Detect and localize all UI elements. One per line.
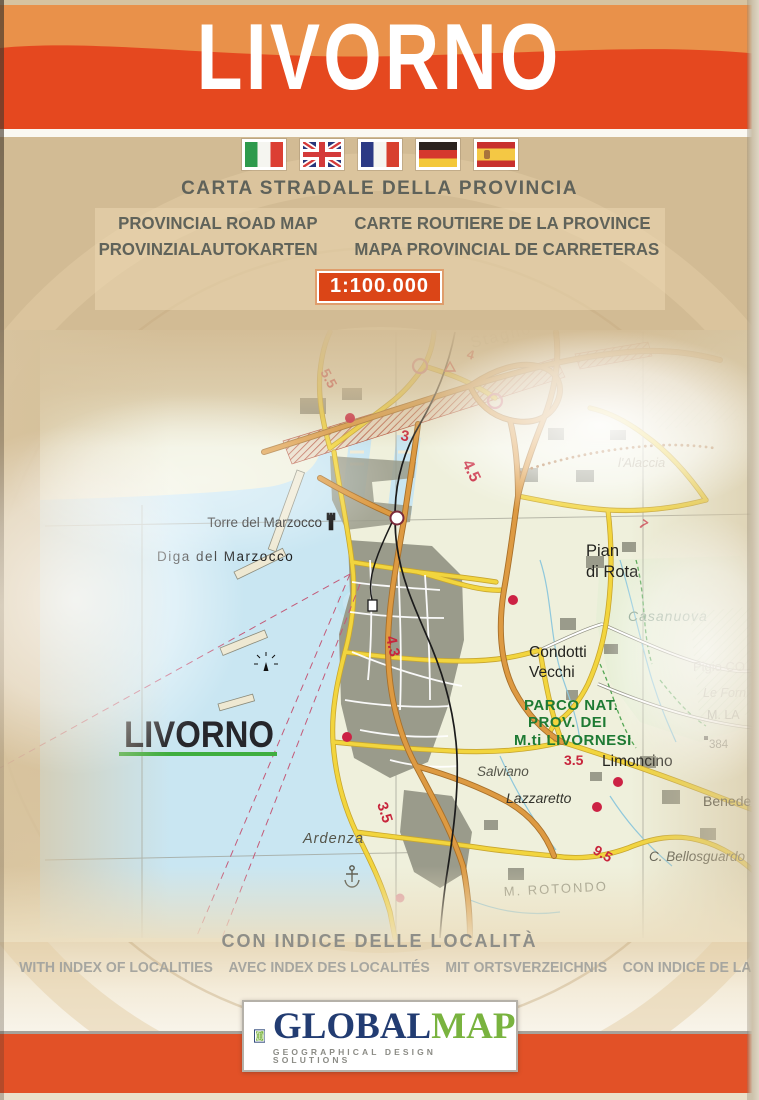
svg-text:Lazzaretto: Lazzaretto <box>506 790 572 806</box>
index-note-languages: WITH INDEX OF LOCALITIESAVEC INDEX DES L… <box>11 960 747 976</box>
scale-badge: 1:100.000 <box>317 271 442 303</box>
subtitle-english: PROVINCIAL ROAD MAP <box>98 213 317 234</box>
svg-text:Condotti: Condotti <box>529 644 587 661</box>
svg-text:M.ti LIVORNESI: M.ti LIVORNESI <box>514 732 632 749</box>
spain-flag-icon <box>474 139 518 170</box>
index-note-es: CON INDICE DE LAS LOCALIDADES <box>623 960 759 976</box>
page-top-edge <box>0 0 759 5</box>
subtitle-languages: PROVINCIAL ROAD MAP CARTE ROUTIERE DE LA… <box>0 213 759 260</box>
index-note-en: WITH INDEX OF LOCALITIES <box>19 960 213 976</box>
germany-flag-icon <box>416 139 460 170</box>
svg-text:Vecchi: Vecchi <box>529 664 575 681</box>
page-title: LIVORNO <box>0 8 759 106</box>
france-flag-icon <box>358 139 402 170</box>
logo-word-map: MAP <box>431 1006 515 1047</box>
index-note-title: CON INDICE DELLE LOCALITÀ <box>0 931 759 952</box>
united-kingdom-flag-icon <box>300 139 344 170</box>
subtitle-spanish: MAPA PROVINCIAL DE CARRETERAS <box>354 239 659 260</box>
publisher-logo: GLOBALMAP GEOGRAPHICAL DESIGN SOLUTIONS <box>242 1000 518 1072</box>
cover-header: LIVORNO <box>0 0 759 129</box>
page-right-edge <box>747 0 759 1100</box>
page-bottom-edge <box>0 1093 759 1100</box>
svg-text:Pian: Pian <box>586 542 619 560</box>
logo-wordmark: GLOBALMAP GEOGRAPHICAL DESIGN SOLUTIONS <box>273 1008 516 1065</box>
subtitle-french: CARTE ROUTIERE DE LA PROVINCE <box>354 213 659 234</box>
svg-text:PARCO NAT.: PARCO NAT. <box>524 697 618 714</box>
logo-tagline: GEOGRAPHICAL DESIGN SOLUTIONS <box>273 1048 516 1065</box>
subtitle-german: PROVINZIALAUTOKARTEN <box>98 239 317 260</box>
language-flags-row <box>0 139 759 170</box>
index-note-de: MIT ORTSVERZEICHNIS <box>445 960 607 976</box>
index-note-fr: AVEC INDEX DES LOCALITÉS <box>228 960 429 976</box>
map-cover-page: LIVORNO CARTA STRADALE DELLA PROVINCIA P… <box>0 0 759 1100</box>
subtitle-italian: CARTA STRADALE DELLA PROVINCIA <box>0 178 759 200</box>
page-left-edge <box>0 0 4 1100</box>
spain-emblem <box>484 150 490 159</box>
header-divider <box>0 129 759 137</box>
globalmap-globe-icon <box>254 1007 265 1065</box>
logo-word-global: GLOBAL <box>273 1006 431 1047</box>
svg-text:Salviano: Salviano <box>477 764 529 779</box>
italy-flag-icon <box>242 139 286 170</box>
livorno-map: Stagno Torre del Marzocco Diga del Marzo… <box>0 330 759 942</box>
svg-text:Ardenza: Ardenza <box>302 831 364 847</box>
scale-badge-wrap: 1:100.000 <box>0 271 759 303</box>
svg-text:3.5: 3.5 <box>564 752 584 768</box>
svg-text:PROV. DEI: PROV. DEI <box>528 714 607 731</box>
